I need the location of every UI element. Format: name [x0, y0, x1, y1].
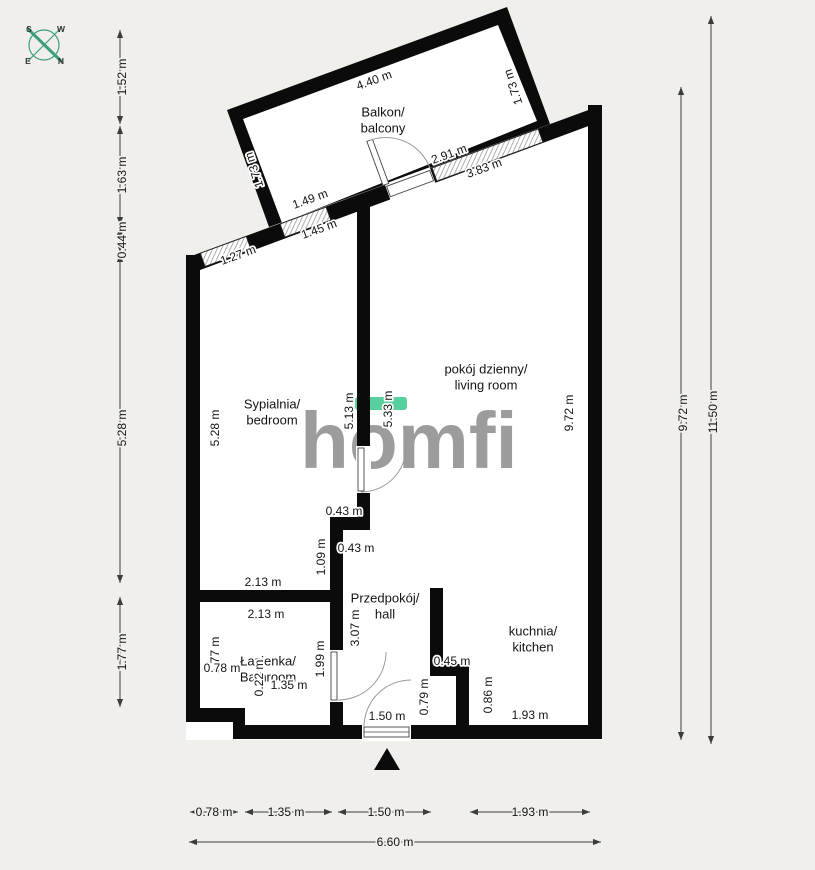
dimension-label: 9.72 m	[562, 395, 576, 432]
dimension-label: 0.78 m	[204, 661, 241, 675]
wall-bedroom-living	[357, 198, 370, 447]
dimension-label: 2.13 m	[245, 575, 282, 589]
dimension-label: 6.60 m	[377, 835, 414, 849]
dimension-label: 3.07 m	[348, 610, 362, 647]
dimension-label: 1.52 m	[115, 59, 129, 96]
dimension-label: 1.93 m	[512, 708, 549, 722]
room-label-hall: hall	[375, 607, 395, 622]
dimension-label: 0.86 m	[481, 677, 495, 714]
bedroom-door-leaf	[358, 448, 364, 491]
dimension-label: 1.09 m	[314, 539, 328, 576]
compass-letter-e: E	[25, 56, 31, 66]
dimension-label: 1.35 m	[271, 678, 308, 692]
dimension-label: 1.63 m	[115, 157, 129, 194]
room-label-bathroom: Łazienka/	[240, 654, 296, 669]
room-label-hall: Przedpokój/	[351, 591, 420, 606]
dimension-label: 1.50 m	[369, 709, 406, 723]
room-label-living-room: living room	[455, 378, 518, 393]
room-label-bedroom: bedroom	[246, 413, 297, 428]
dimension-label: 0.22 m	[252, 660, 266, 697]
dimension-label: 1.99 m	[313, 641, 327, 678]
wall-bathroom-right-upper	[330, 517, 343, 652]
dimension-label: 5.13 m	[342, 393, 356, 430]
wall-bottom	[233, 725, 602, 739]
room-label-kitchen: kitchen	[512, 640, 553, 655]
room-label-bedroom: Sypialnia/	[244, 397, 301, 412]
room-label-balcony: balcony	[361, 121, 406, 136]
logo: homfi	[300, 396, 518, 485]
room-label-balcony: Balkon/	[361, 105, 405, 120]
dimension-label: 0.79 m	[417, 679, 431, 716]
room-label-kitchen: kuchnia/	[509, 624, 558, 639]
dimension-label: 5.28 m	[208, 410, 222, 447]
dimension-label: 1.50 m	[368, 805, 405, 819]
floor-plan: homfi	[0, 0, 815, 870]
wall-kitchen-hall-lower	[456, 664, 469, 739]
floor-plan-page: homfi	[0, 0, 815, 870]
wall-bedroom-bathroom	[186, 590, 343, 602]
compass-letter-w: W	[57, 24, 66, 34]
logo-text: homfi	[300, 396, 518, 485]
room-label-living-room: pokój dzienny/	[444, 362, 527, 377]
dimension-label: 1.35 m	[268, 805, 305, 819]
dimension-label: 5.28 m	[115, 410, 129, 447]
dimension-label: 0.43 m	[326, 504, 363, 518]
dimension-label: 5.33 m	[381, 391, 395, 428]
wall-left	[186, 255, 200, 722]
bathroom-door-leaf	[331, 652, 337, 700]
dimension-label: 0.78 m	[196, 805, 233, 819]
compass-letter-s: S	[26, 24, 32, 34]
wall-right	[588, 105, 602, 739]
dimension-label: 0.44 m	[115, 222, 129, 259]
dimension-label: 2.13 m	[248, 607, 285, 621]
dimension-label: 9.72 m	[676, 395, 690, 432]
dimension-label: 1.93 m	[512, 805, 549, 819]
wall-bathroom-right-lower	[330, 700, 343, 739]
dimension-label: 11.50 m	[706, 391, 720, 433]
dimension-label: 0.43 m	[338, 541, 375, 555]
dimension-label: 1.77 m	[115, 634, 129, 671]
compass-letter-n: N	[58, 56, 64, 66]
dimension-label: 0.45 m	[434, 654, 471, 668]
